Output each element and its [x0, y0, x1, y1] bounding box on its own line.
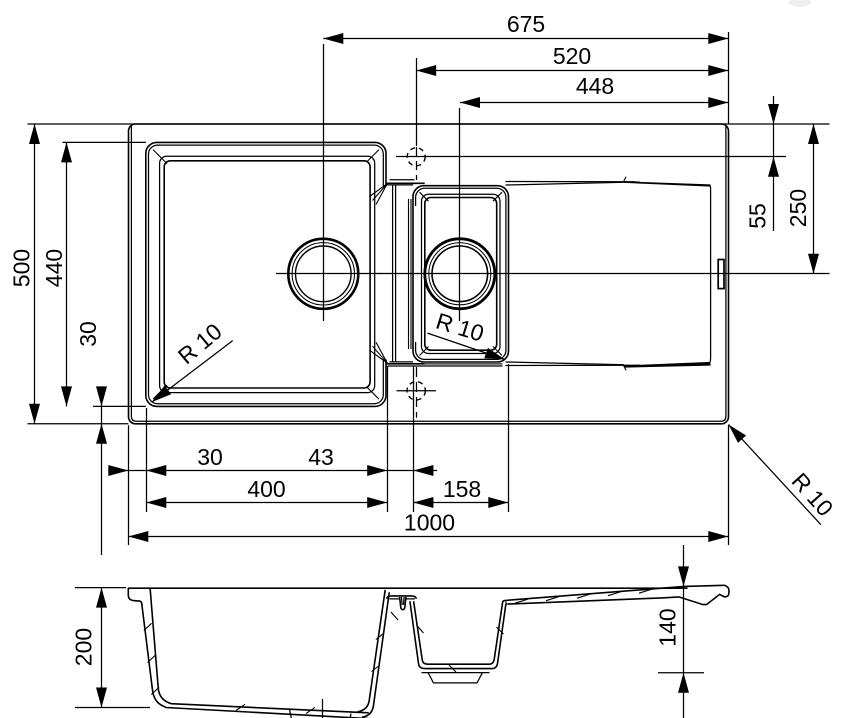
svg-text:250: 250 [785, 189, 811, 227]
svg-text:675: 675 [507, 11, 545, 37]
svg-text:30: 30 [197, 444, 223, 470]
svg-text:400: 400 [247, 476, 285, 502]
svg-text:140: 140 [655, 608, 681, 646]
svg-text:200: 200 [71, 628, 97, 666]
svg-text:1000: 1000 [404, 510, 455, 536]
svg-text:440: 440 [41, 249, 67, 287]
svg-text:500: 500 [9, 249, 35, 287]
svg-text:55: 55 [745, 203, 771, 229]
svg-text:448: 448 [576, 73, 614, 99]
svg-text:43: 43 [308, 444, 334, 470]
svg-text:30: 30 [75, 321, 101, 347]
svg-text:158: 158 [443, 476, 481, 502]
svg-text:520: 520 [553, 43, 591, 69]
